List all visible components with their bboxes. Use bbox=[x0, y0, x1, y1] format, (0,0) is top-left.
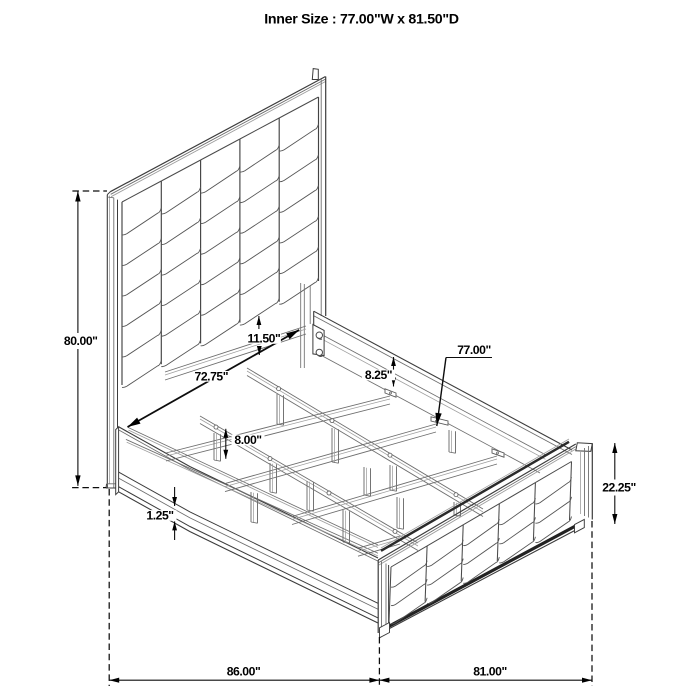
svg-text:80.00": 80.00" bbox=[64, 334, 98, 348]
svg-text:86.00": 86.00" bbox=[227, 665, 261, 679]
svg-text:1.25": 1.25" bbox=[146, 509, 173, 523]
svg-text:8.25": 8.25" bbox=[365, 368, 392, 382]
svg-text:81.00": 81.00" bbox=[473, 665, 507, 679]
svg-text:Inner Size : 77.00"W x 81.50"D: Inner Size : 77.00"W x 81.50"D bbox=[264, 12, 459, 28]
svg-text:11.50": 11.50" bbox=[247, 332, 280, 346]
svg-text:72.75": 72.75" bbox=[195, 369, 229, 383]
svg-text:22.25": 22.25" bbox=[602, 481, 636, 495]
svg-text:77.00": 77.00" bbox=[457, 343, 491, 357]
svg-text:8.00": 8.00" bbox=[234, 433, 261, 447]
